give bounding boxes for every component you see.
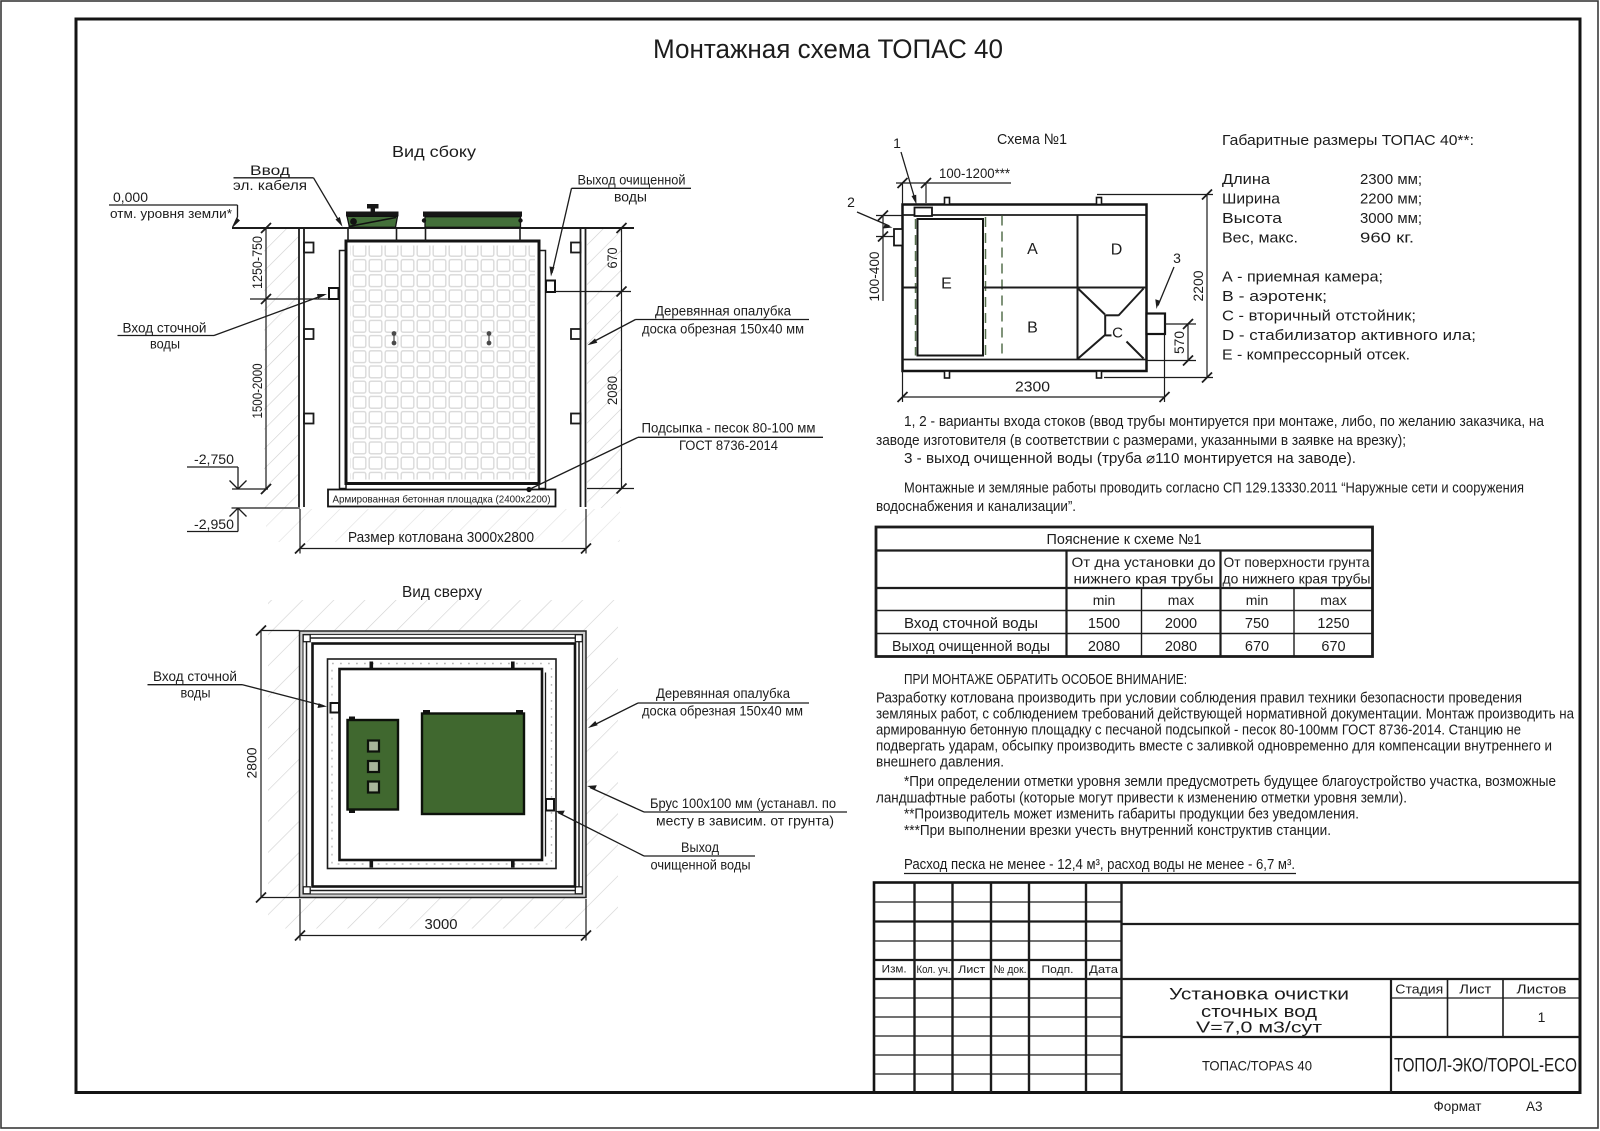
svg-text:1, 2 - варианты входа стоков: 1, 2 - варианты входа стоков (ввод трубы… bbox=[904, 414, 1545, 430]
svg-text:2080: 2080 bbox=[1088, 639, 1120, 655]
svg-text:Подсыпка - песок 80-100 мм: Подсыпка - песок 80-100 мм bbox=[642, 421, 816, 436]
svg-text:Вид сбоку: Вид сбоку bbox=[392, 144, 476, 161]
svg-text:воды: воды bbox=[181, 686, 211, 701]
svg-text:Вход сточной: Вход сточной bbox=[153, 669, 237, 684]
svg-text:min: min bbox=[1246, 592, 1269, 608]
svg-text:Монтажная схема ТОПАС 40: Монтажная схема ТОПАС 40 bbox=[653, 34, 1003, 64]
svg-text:ТОПОЛ-ЭКО/TOPOL-ECO: ТОПОЛ-ЭКО/TOPOL-ECO bbox=[1394, 1056, 1577, 1077]
svg-text:нижнего края трубы: нижнего края трубы bbox=[1074, 571, 1214, 587]
svg-text:**Производитель может изменить: **Производитель может изменить габариты … bbox=[904, 807, 1359, 823]
svg-text:2: 2 bbox=[847, 194, 855, 210]
svg-text:2300 мм;: 2300 мм; bbox=[1360, 171, 1422, 188]
svg-text:2080: 2080 bbox=[1165, 639, 1197, 655]
svg-text:570: 570 bbox=[1172, 331, 1187, 354]
svg-text:min: min bbox=[1093, 592, 1116, 608]
svg-text:Изм.: Изм. bbox=[882, 964, 907, 976]
svg-text:Выход: Выход bbox=[681, 840, 719, 855]
svg-text:670: 670 bbox=[605, 248, 620, 269]
svg-text:Вход сточной воды: Вход сточной воды bbox=[904, 616, 1038, 632]
svg-text:армированную бетонную площадку: армированную бетонную площадку с песчано… bbox=[876, 723, 1521, 739]
svg-text:-2,750: -2,750 bbox=[194, 452, 234, 467]
svg-text:Ширина: Ширина bbox=[1222, 191, 1281, 208]
svg-text:3: 3 bbox=[1173, 250, 1181, 266]
svg-text:2300: 2300 bbox=[1015, 380, 1050, 396]
svg-text:ТОПАС/TOPAS 40: ТОПАС/TOPAS 40 bbox=[1202, 1058, 1312, 1074]
svg-text:670: 670 bbox=[1321, 639, 1345, 655]
svg-text:Деревянная опалубка: Деревянная опалубка bbox=[655, 304, 791, 319]
svg-text:1250: 1250 bbox=[1317, 616, 1349, 632]
svg-text:Брус 100х100 мм (устанавл. по: Брус 100х100 мм (устанавл. по bbox=[650, 796, 836, 811]
svg-text:Кол. уч.: Кол. уч. bbox=[917, 964, 951, 976]
svg-text:Вид сверху: Вид сверху bbox=[402, 584, 482, 601]
svg-text:ГОСТ 8736-2014: ГОСТ 8736-2014 bbox=[679, 438, 778, 453]
svg-text:1500-2000: 1500-2000 bbox=[250, 364, 265, 419]
svg-text:1: 1 bbox=[893, 135, 901, 151]
svg-text:0,000: 0,000 bbox=[113, 190, 148, 205]
svg-text:Подп.: Подп. bbox=[1042, 964, 1074, 976]
svg-text:до нижнего края трубы: до нижнего края трубы bbox=[1223, 571, 1371, 587]
svg-text:А3: А3 bbox=[1526, 1099, 1543, 1114]
svg-text:750: 750 bbox=[1245, 616, 1269, 632]
svg-text:Лист: Лист bbox=[1459, 982, 1491, 997]
svg-text:B: B bbox=[1027, 320, 1038, 337]
svg-text:Размер котлована 3000х2800: Размер котлована 3000х2800 bbox=[348, 529, 534, 546]
svg-text:3000 мм;: 3000 мм; bbox=[1360, 210, 1422, 227]
svg-text:От поверхности грунта: От поверхности грунта bbox=[1224, 554, 1370, 570]
svg-text:Пояснение к схеме №1: Пояснение к схеме №1 bbox=[1047, 532, 1202, 548]
svg-text:100-1200***: 100-1200*** bbox=[939, 166, 1011, 181]
svg-text:заводе изготовителя (в соответ: заводе изготовителя (в соответствии с ра… bbox=[876, 433, 1406, 449]
svg-text:Расход песка не менее - 12,4 м: Расход песка не менее - 12,4 м³, расход … bbox=[904, 857, 1295, 873]
svg-text:Е - компрессорный отсек.: Е - компрессорный отсек. bbox=[1222, 347, 1410, 364]
svg-text:С - вторичный отстойник;: С - вторичный отстойник; bbox=[1222, 308, 1416, 325]
svg-text:очищенной воды: очищенной воды bbox=[651, 858, 751, 873]
svg-text:Схема №1: Схема №1 bbox=[997, 131, 1067, 148]
svg-text:доска обрезная 150х40 мм: доска обрезная 150х40 мм bbox=[642, 704, 803, 719]
svg-text:Вес, макс.: Вес, макс. bbox=[1222, 230, 1298, 247]
svg-text:воды: воды bbox=[150, 337, 180, 352]
svg-text:2200: 2200 bbox=[1191, 271, 1206, 302]
svg-text:эл. кабеля: эл. кабеля bbox=[233, 178, 307, 193]
svg-text:ландшафтные работы (которые мо: ландшафтные работы (которые могут привес… bbox=[876, 791, 1407, 807]
svg-text:Вход сточной: Вход сточной bbox=[123, 321, 207, 336]
svg-text:ПРИ МОНТАЖЕ ОБРАТИТЬ ОСОБОЕ ВН: ПРИ МОНТАЖЕ ОБРАТИТЬ ОСОБОЕ ВНИМАНИЕ: bbox=[904, 672, 1187, 688]
svg-text:max: max bbox=[1168, 592, 1194, 608]
svg-text:E: E bbox=[941, 276, 952, 293]
svg-text:960 кг.: 960 кг. bbox=[1360, 230, 1414, 247]
svg-text:100-400: 100-400 bbox=[867, 252, 882, 302]
svg-text:1: 1 bbox=[1538, 1009, 1546, 1025]
svg-text:В - аэротенк;: В - аэротенк; bbox=[1222, 288, 1327, 305]
svg-text:земляных работ, с соблюдением: земляных работ, с соблюдением требований… bbox=[876, 707, 1575, 723]
svg-text:Высота: Высота bbox=[1222, 210, 1283, 227]
svg-text:Выход очищенной воды: Выход очищенной воды bbox=[892, 639, 1050, 655]
svg-text:№ док.: № док. bbox=[994, 964, 1027, 976]
svg-text:А - приемная камера;: А - приемная камера; bbox=[1222, 269, 1383, 286]
svg-text:1250-750: 1250-750 bbox=[250, 236, 265, 289]
svg-text:1500: 1500 bbox=[1088, 616, 1120, 632]
svg-text:Разработку котлована производи: Разработку котлована производить при усл… bbox=[876, 691, 1522, 707]
svg-text:2800: 2800 bbox=[245, 748, 260, 779]
svg-text:подвергать ударам, обсыпку про: подвергать ударам, обсыпку производить в… bbox=[876, 739, 1552, 755]
svg-text:-2,950: -2,950 bbox=[194, 517, 234, 532]
svg-text:C: C bbox=[1112, 325, 1123, 342]
svg-text:2200 мм;: 2200 мм; bbox=[1360, 191, 1422, 208]
svg-text:3 - выход очищенной воды (труб: 3 - выход очищенной воды (труба ⌀110 мон… bbox=[904, 451, 1356, 467]
svg-text:сточных вод: сточных вод bbox=[1201, 1003, 1317, 1021]
svg-text:2080: 2080 bbox=[605, 376, 620, 405]
svg-text:Стадия: Стадия bbox=[1395, 982, 1443, 997]
svg-text:Монтажные и земляные работы пр: Монтажные и земляные работы проводить со… bbox=[904, 481, 1524, 497]
svg-text:D: D bbox=[1111, 242, 1123, 259]
svg-text:месту в зависим. от грунта): месту в зависим. от грунта) bbox=[656, 814, 834, 829]
svg-text:A: A bbox=[1027, 241, 1038, 258]
svg-text:Габаритные размеры ТОПАС 40**:: Габаритные размеры ТОПАС 40**: bbox=[1222, 132, 1474, 149]
svg-text:Армированная бетонная площадка: Армированная бетонная площадка (2400х220… bbox=[333, 494, 551, 506]
svg-text:D - стабилизатор активного ила: D - стабилизатор активного ила; bbox=[1222, 327, 1476, 344]
svg-text:*При определении отметки уровн: *При определении отметки уровня земли пр… bbox=[904, 774, 1556, 790]
svg-text:Выход очищенной: Выход очищенной bbox=[578, 173, 686, 188]
svg-text:670: 670 bbox=[1245, 639, 1269, 655]
svg-text:Дата: Дата bbox=[1089, 964, 1119, 976]
svg-text:Деревянная опалубка: Деревянная опалубка bbox=[656, 686, 790, 701]
svg-text:***При выполнении врезки учест: ***При выполнении врезки учесть внутренн… bbox=[904, 823, 1331, 839]
svg-text:3000: 3000 bbox=[425, 916, 458, 933]
svg-text:Ввод: Ввод bbox=[250, 163, 290, 178]
svg-text:Листов: Листов bbox=[1517, 982, 1567, 997]
svg-text:От дна установки до: От дна установки до bbox=[1072, 554, 1216, 570]
svg-text:Длина: Длина bbox=[1222, 171, 1271, 188]
svg-text:2000: 2000 bbox=[1165, 616, 1197, 632]
svg-text:Установка очистки: Установка очистки bbox=[1169, 986, 1349, 1004]
svg-text:Формат: Формат bbox=[1434, 1099, 1482, 1114]
svg-text:доска обрезная 150х40 мм: доска обрезная 150х40 мм bbox=[642, 322, 804, 337]
svg-text:внешнего давления.: внешнего давления. bbox=[876, 755, 1004, 771]
svg-text:воды: воды bbox=[614, 190, 647, 205]
svg-text:водоснабжения и канализации”.: водоснабжения и канализации”. bbox=[876, 499, 1076, 515]
svg-text:V=7,0 м3/сут: V=7,0 м3/сут bbox=[1196, 1020, 1322, 1037]
svg-text:max: max bbox=[1320, 592, 1346, 608]
svg-text:отм. уровня земли*: отм. уровня земли* bbox=[110, 207, 232, 221]
svg-text:Лист: Лист bbox=[958, 964, 985, 976]
